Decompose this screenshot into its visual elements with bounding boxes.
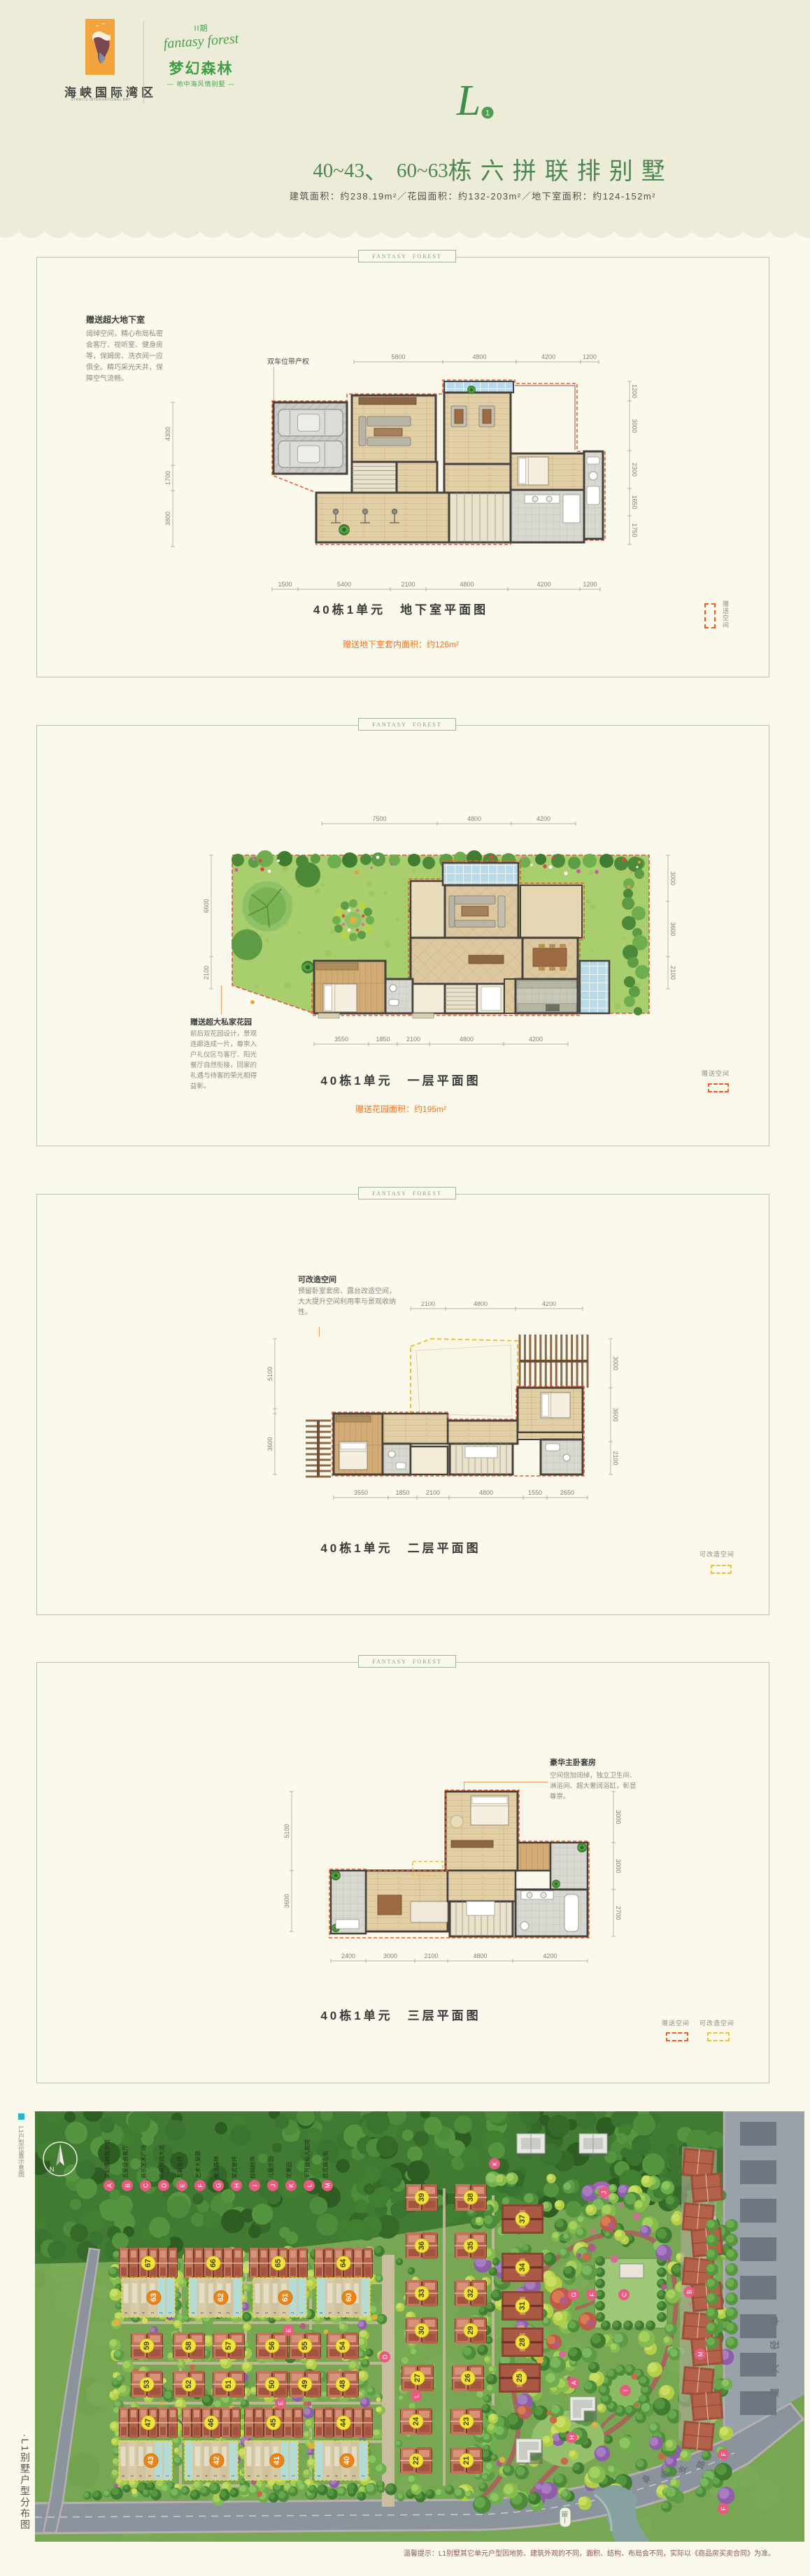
svg-text:4800: 4800 <box>472 353 486 360</box>
svg-text:4800: 4800 <box>460 581 474 588</box>
svg-text:56: 56 <box>268 2342 276 2350</box>
svg-text:H: H <box>569 2435 576 2440</box>
svg-text:1: 1 <box>166 2475 170 2477</box>
svg-text:K: K <box>492 2162 499 2166</box>
svg-text:五星级会客厅: 五星级会客厅 <box>122 2145 129 2179</box>
svg-text:2100: 2100 <box>424 1952 438 1959</box>
svg-text:4800: 4800 <box>474 1302 488 1307</box>
svg-text:音乐艺术广场: 音乐艺术广场 <box>140 2145 147 2179</box>
svg-text:2: 2 <box>355 2311 359 2314</box>
svg-text:60: 60 <box>345 2293 353 2302</box>
svg-text:2: 2 <box>283 2475 287 2477</box>
svg-text:1650: 1650 <box>631 495 638 509</box>
svg-text:4: 4 <box>205 2475 209 2477</box>
svg-text:欧式商业街: 欧式商业街 <box>322 2151 329 2179</box>
svg-text:58: 58 <box>185 2342 193 2350</box>
svg-text:D: D <box>161 2183 168 2188</box>
svg-text:B: B <box>686 2290 693 2294</box>
svg-text:C: C <box>143 2183 150 2188</box>
svg-text:66: 66 <box>209 2259 218 2267</box>
svg-text:3000: 3000 <box>631 418 638 432</box>
svg-text:36: 36 <box>418 2241 426 2250</box>
svg-text:59: 59 <box>143 2342 151 2350</box>
svg-text:5100: 5100 <box>283 1824 290 1838</box>
svg-text:1200: 1200 <box>631 384 638 398</box>
svg-text:2700: 2700 <box>615 1906 622 1920</box>
svg-text:1: 1 <box>362 2475 366 2477</box>
svg-text:L: L <box>306 2183 313 2187</box>
svg-text:4: 4 <box>142 2311 146 2314</box>
svg-text:4: 4 <box>209 2311 213 2314</box>
svg-text:棕榈树阵: 棕榈树阵 <box>249 2156 256 2179</box>
svg-text:4200: 4200 <box>537 581 550 588</box>
svg-text:25: 25 <box>516 2374 524 2382</box>
svg-text:J: J <box>601 2191 608 2195</box>
svg-text:4300: 4300 <box>164 427 171 441</box>
svg-text:3000: 3000 <box>383 1952 397 1959</box>
svg-text:43: 43 <box>147 2456 155 2465</box>
svg-text:3: 3 <box>283 2311 287 2314</box>
svg-text:大: 大 <box>769 2364 780 2373</box>
svg-text:2100: 2100 <box>612 1451 619 1465</box>
svg-text:E: E <box>278 2401 285 2405</box>
svg-text:31: 31 <box>518 2302 527 2310</box>
svg-text:艺术大屏幕: 艺术大屏幕 <box>194 2151 201 2179</box>
svg-text:3000: 3000 <box>615 1859 622 1873</box>
svg-text:4: 4 <box>273 2311 278 2314</box>
svg-text:E: E <box>285 2328 292 2332</box>
svg-text:道: 道 <box>769 2388 780 2397</box>
svg-text:4200: 4200 <box>543 1952 557 1959</box>
svg-text:2100: 2100 <box>406 1036 420 1043</box>
svg-text:3: 3 <box>344 2475 348 2477</box>
svg-text:1: 1 <box>169 2311 173 2314</box>
svg-text:3000: 3000 <box>612 1356 619 1370</box>
svg-text:1700: 1700 <box>164 471 171 485</box>
svg-text:E: E <box>179 2183 186 2188</box>
svg-text:53: 53 <box>143 2380 151 2388</box>
svg-text:35: 35 <box>467 2241 475 2250</box>
svg-text:2: 2 <box>159 2311 164 2314</box>
svg-text:2: 2 <box>222 2475 227 2477</box>
svg-text:6: 6 <box>256 2311 260 2314</box>
svg-text:32: 32 <box>467 2289 475 2297</box>
svg-text:M: M <box>325 2183 332 2188</box>
svg-text:5: 5 <box>197 2475 201 2477</box>
svg-text:3: 3 <box>151 2311 155 2314</box>
svg-text:62: 62 <box>217 2293 225 2302</box>
svg-text:52: 52 <box>185 2380 193 2388</box>
svg-text:22: 22 <box>412 2456 420 2465</box>
svg-text:1: 1 <box>485 109 490 118</box>
svg-text:英式草坪: 英式草坪 <box>231 2156 238 2179</box>
svg-text:2100: 2100 <box>426 1489 440 1496</box>
svg-text:五彩花径: 五彩花径 <box>176 2156 183 2179</box>
svg-text:2100: 2100 <box>669 966 676 980</box>
svg-text:6: 6 <box>320 2311 324 2314</box>
svg-text:1550: 1550 <box>528 1489 542 1496</box>
svg-text:6: 6 <box>125 2311 129 2314</box>
svg-text:2: 2 <box>353 2475 357 2477</box>
svg-text:3: 3 <box>148 2475 152 2477</box>
svg-text:1200: 1200 <box>583 353 597 360</box>
svg-text:6600: 6600 <box>203 899 210 913</box>
svg-text:I: I <box>623 2390 630 2392</box>
svg-text:30: 30 <box>418 2326 426 2335</box>
svg-text:5: 5 <box>257 2475 261 2477</box>
svg-text:44: 44 <box>339 2418 348 2427</box>
svg-text:4800: 4800 <box>467 815 481 822</box>
svg-text:4800: 4800 <box>479 1489 493 1496</box>
svg-text:F: F <box>720 2507 727 2511</box>
svg-text:4200: 4200 <box>542 1302 556 1307</box>
svg-text:1: 1 <box>232 2475 236 2477</box>
svg-text:4800: 4800 <box>460 1036 474 1043</box>
svg-text:21: 21 <box>462 2456 471 2465</box>
svg-text:1850: 1850 <box>376 1036 390 1043</box>
svg-text:4: 4 <box>265 2475 269 2477</box>
svg-text:47: 47 <box>144 2419 152 2427</box>
svg-text:7500: 7500 <box>372 815 386 822</box>
svg-text:26: 26 <box>464 2374 472 2382</box>
svg-text:45: 45 <box>269 2419 278 2427</box>
svg-text:魔法森林: 魔法森林 <box>213 2156 220 2179</box>
svg-text:M: M <box>697 2351 704 2357</box>
svg-text:2400: 2400 <box>341 1952 355 1959</box>
svg-text:5800: 5800 <box>391 353 405 360</box>
svg-text:G: G <box>215 2183 222 2188</box>
svg-text:3600: 3600 <box>612 1407 619 1421</box>
svg-text:半开放私人庭院: 半开放私人庭院 <box>304 2139 311 2179</box>
svg-text:57: 57 <box>225 2342 233 2350</box>
svg-text:2100: 2100 <box>203 966 210 980</box>
svg-text:2: 2 <box>291 2311 295 2314</box>
svg-text:5100: 5100 <box>267 1367 273 1381</box>
svg-text:33: 33 <box>418 2289 426 2297</box>
svg-text:3550: 3550 <box>334 1036 348 1043</box>
svg-text:67: 67 <box>144 2259 152 2267</box>
svg-text:1850: 1850 <box>395 1489 409 1496</box>
svg-text:1200: 1200 <box>583 581 597 588</box>
svg-text:24: 24 <box>412 2416 420 2426</box>
svg-text:L: L <box>413 2394 420 2398</box>
svg-text:1: 1 <box>364 2311 368 2314</box>
svg-text:花果园: 花果园 <box>285 2162 292 2179</box>
svg-text:I: I <box>252 2185 259 2187</box>
svg-text:A: A <box>106 2183 113 2188</box>
svg-text:K: K <box>288 2183 295 2188</box>
svg-text:梦幻森林跑步道: 梦幻森林跑步道 <box>104 2139 111 2179</box>
svg-text:48: 48 <box>339 2380 347 2388</box>
svg-text:5: 5 <box>329 2311 333 2314</box>
svg-text:4200: 4200 <box>541 353 555 360</box>
svg-text:23: 23 <box>462 2417 471 2426</box>
svg-text:4200: 4200 <box>537 815 550 822</box>
svg-text:C: C <box>621 2292 628 2297</box>
svg-text:3: 3 <box>214 2475 218 2477</box>
svg-text:1: 1 <box>236 2311 240 2314</box>
svg-text:1: 1 <box>292 2475 296 2477</box>
svg-text:6: 6 <box>122 2475 126 2477</box>
svg-text:4200: 4200 <box>529 1036 543 1043</box>
svg-text:64: 64 <box>339 2258 348 2267</box>
svg-text:卓: 卓 <box>769 2316 780 2325</box>
svg-text:H: H <box>234 2183 241 2188</box>
svg-text:2: 2 <box>157 2475 161 2477</box>
svg-text:4800: 4800 <box>473 1952 487 1959</box>
svg-text:3550: 3550 <box>354 1489 368 1496</box>
svg-text:A: A <box>571 2381 578 2385</box>
svg-text:径: 径 <box>769 2340 780 2349</box>
svg-text:中央景观大道: 中央景观大道 <box>158 2145 165 2179</box>
svg-text:28: 28 <box>518 2338 527 2346</box>
svg-text:5: 5 <box>265 2311 269 2314</box>
svg-text:37: 37 <box>518 2215 527 2223</box>
svg-text:2100: 2100 <box>421 1302 435 1307</box>
svg-text:63: 63 <box>150 2293 158 2302</box>
svg-text:3600: 3600 <box>283 1894 290 1908</box>
svg-text:5: 5 <box>134 2311 138 2314</box>
svg-text:F: F <box>197 2183 204 2188</box>
svg-text:49: 49 <box>301 2380 309 2388</box>
svg-text:3: 3 <box>346 2311 350 2314</box>
svg-text:3000: 3000 <box>669 871 676 885</box>
svg-text:38: 38 <box>467 2193 475 2202</box>
svg-text:D: D <box>382 2354 389 2359</box>
svg-text:42: 42 <box>213 2456 221 2465</box>
svg-text:G: G <box>571 2292 578 2297</box>
svg-text:29: 29 <box>467 2326 475 2335</box>
svg-text:3600: 3600 <box>267 1437 273 1451</box>
svg-text:6: 6 <box>187 2475 192 2477</box>
svg-text:B: B <box>125 2183 132 2188</box>
svg-text:4: 4 <box>337 2311 341 2314</box>
svg-text:65: 65 <box>274 2259 283 2267</box>
svg-text:J: J <box>270 2184 277 2188</box>
svg-text:5400: 5400 <box>337 581 351 588</box>
svg-text:3: 3 <box>218 2311 222 2314</box>
svg-text:39: 39 <box>418 2193 426 2202</box>
svg-text:55: 55 <box>301 2342 309 2350</box>
svg-text:27: 27 <box>413 2374 422 2382</box>
svg-text:41: 41 <box>273 2456 281 2465</box>
svg-text:1: 1 <box>300 2311 304 2314</box>
svg-text:54: 54 <box>339 2341 347 2350</box>
svg-text:50: 50 <box>268 2380 276 2388</box>
svg-text:3600: 3600 <box>669 922 676 936</box>
svg-text:1500: 1500 <box>278 581 292 588</box>
svg-text:6: 6 <box>192 2311 196 2314</box>
svg-text:F: F <box>720 2452 727 2456</box>
svg-text:3000: 3000 <box>615 1810 622 1824</box>
svg-text:6: 6 <box>248 2475 252 2477</box>
svg-text:61: 61 <box>281 2293 290 2302</box>
svg-text:儿童乐园: 儿童乐园 <box>267 2156 274 2179</box>
svg-text:34: 34 <box>518 2262 527 2272</box>
svg-text:2: 2 <box>227 2311 231 2314</box>
svg-text:46: 46 <box>207 2419 215 2427</box>
svg-text:4: 4 <box>139 2475 143 2477</box>
svg-text:一期: 一期 <box>562 2511 569 2524</box>
svg-text:2650: 2650 <box>560 1489 574 1496</box>
svg-text:4: 4 <box>335 2475 339 2477</box>
svg-text:5: 5 <box>201 2311 205 2314</box>
svg-text:5: 5 <box>327 2475 331 2477</box>
svg-text:40: 40 <box>343 2456 351 2465</box>
svg-text:5: 5 <box>131 2475 135 2477</box>
svg-text:F: F <box>589 2293 596 2297</box>
svg-text:N: N <box>50 2166 55 2173</box>
svg-text:6: 6 <box>318 2475 322 2477</box>
svg-text:1750: 1750 <box>631 523 638 537</box>
svg-text:51: 51 <box>225 2380 233 2388</box>
svg-text:2300: 2300 <box>631 463 638 477</box>
svg-text:3800: 3800 <box>164 512 171 526</box>
svg-text:3: 3 <box>274 2475 278 2477</box>
svg-text:2100: 2100 <box>401 581 415 588</box>
